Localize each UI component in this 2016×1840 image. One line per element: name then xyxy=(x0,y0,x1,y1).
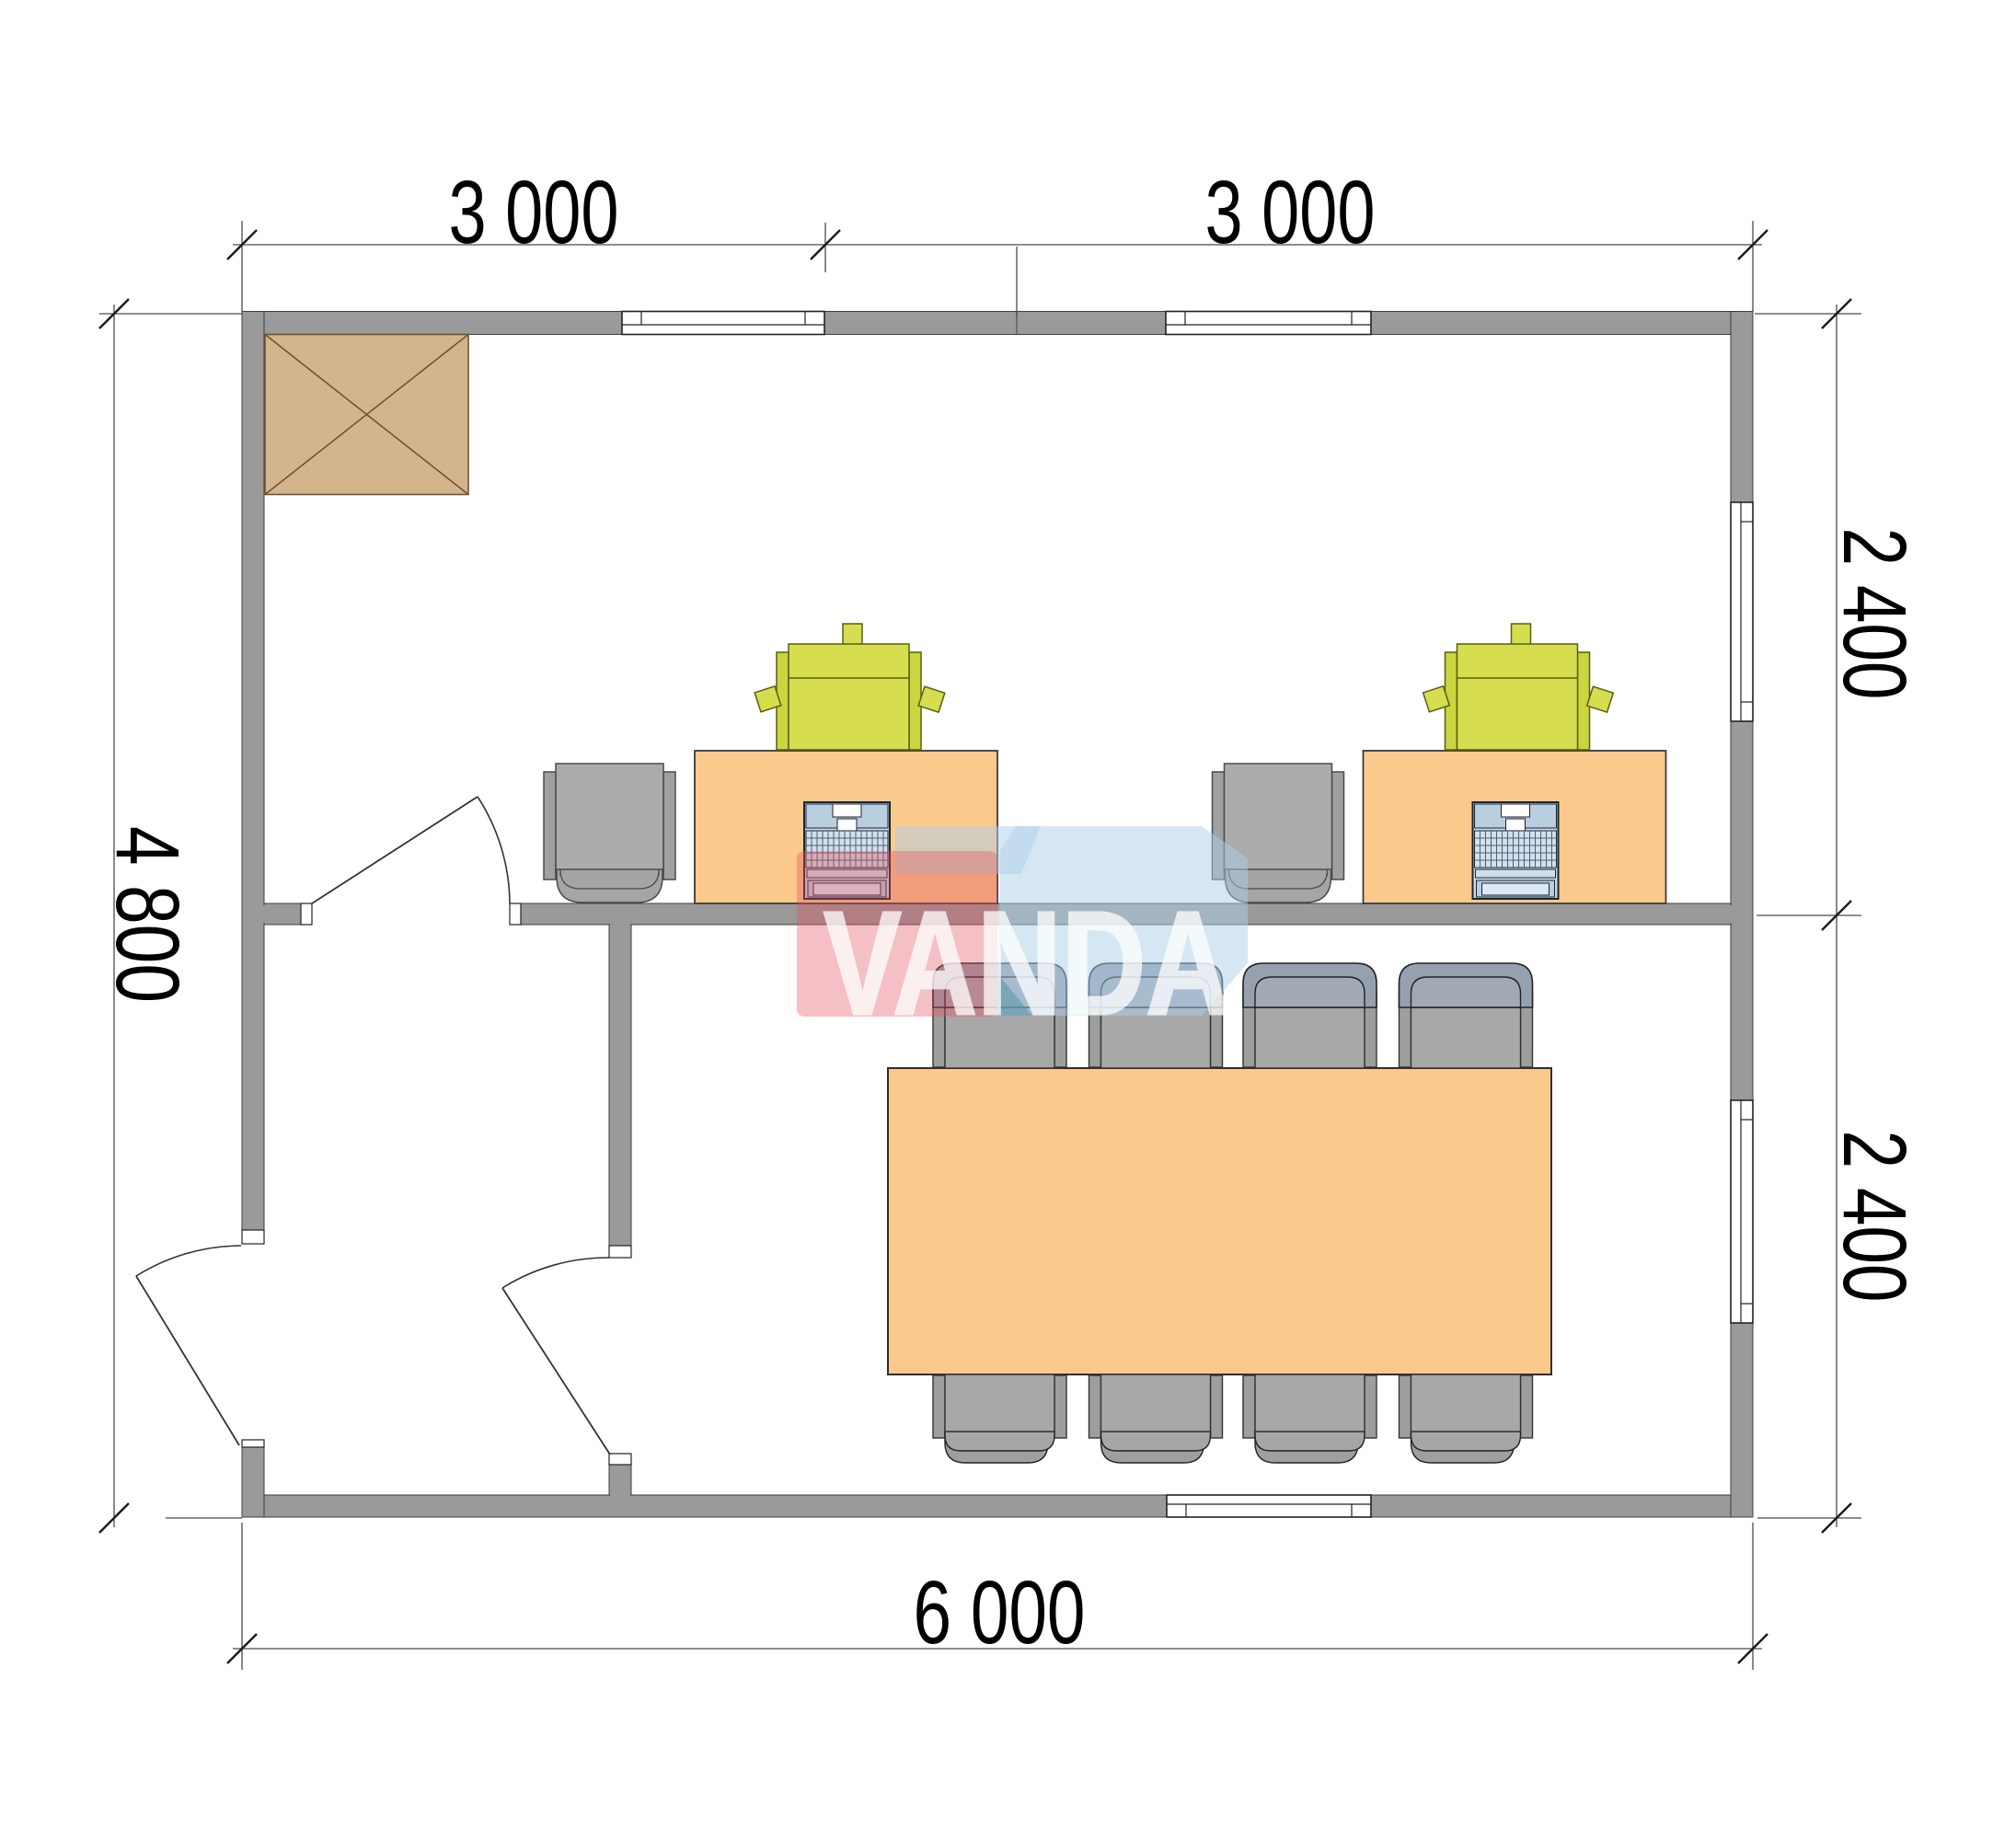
svg-text:2 400: 2 400 xyxy=(1825,1131,1925,1303)
svg-text:2 400: 2 400 xyxy=(1825,528,1925,700)
svg-text:6 000: 6 000 xyxy=(914,1562,1086,1662)
svg-text:VANDA: VANDA xyxy=(824,880,1230,1045)
svg-text:3 000: 3 000 xyxy=(449,162,619,262)
svg-text:4 800: 4 800 xyxy=(98,826,198,1003)
svg-text:3 000: 3 000 xyxy=(1205,162,1376,262)
